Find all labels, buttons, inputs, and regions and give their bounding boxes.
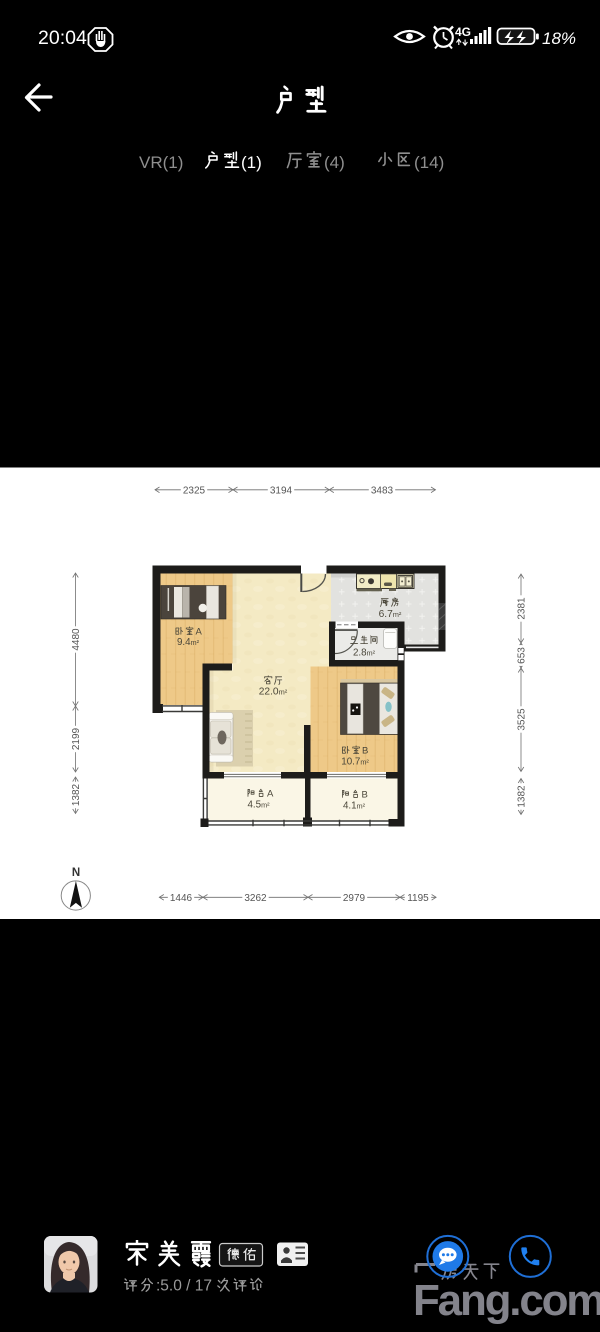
svg-text:3525: 3525 — [517, 708, 528, 731]
svg-text:9.4m²: 9.4m² — [177, 637, 200, 648]
svg-text:6.7m²: 6.7m² — [379, 609, 402, 620]
svg-text:22.0m²: 22.0m² — [259, 687, 288, 698]
svg-text:1446: 1446 — [170, 893, 193, 904]
svg-text:4.5m²: 4.5m² — [247, 800, 270, 811]
svg-text:1382: 1382 — [517, 785, 528, 808]
svg-text:10.7m²: 10.7m² — [341, 757, 369, 768]
svg-text:1382: 1382 — [71, 783, 82, 806]
svg-text:A: A — [196, 627, 203, 638]
svg-text:(1): (1) — [241, 153, 262, 172]
svg-text:2381: 2381 — [517, 597, 528, 620]
svg-text:20:04: 20:04 — [38, 27, 87, 49]
svg-text:3483: 3483 — [371, 485, 394, 496]
svg-text:B: B — [362, 790, 368, 801]
svg-text:2199: 2199 — [71, 727, 82, 750]
svg-text:2979: 2979 — [343, 893, 366, 904]
svg-text:2.8m²: 2.8m² — [353, 648, 376, 659]
svg-text:B: B — [362, 746, 368, 757]
svg-text:2325: 2325 — [183, 485, 206, 496]
svg-text:3194: 3194 — [270, 485, 293, 496]
svg-text:4G: 4G — [455, 25, 471, 39]
svg-text:18%: 18% — [542, 29, 576, 48]
svg-text::5.0 / 17: :5.0 / 17 — [156, 1278, 212, 1295]
svg-text:3262: 3262 — [244, 893, 267, 904]
svg-text:Fang.com: Fang.com — [413, 1276, 600, 1325]
svg-text:VR(1): VR(1) — [139, 153, 183, 172]
svg-text:N: N — [72, 867, 80, 879]
svg-text:1195: 1195 — [407, 893, 429, 904]
svg-text:A: A — [267, 789, 274, 800]
svg-text:653: 653 — [517, 647, 528, 664]
svg-text:4.1m²: 4.1m² — [343, 801, 366, 812]
svg-text:4480: 4480 — [71, 628, 82, 651]
svg-text:(14): (14) — [414, 153, 444, 172]
svg-text:(4): (4) — [324, 153, 345, 172]
